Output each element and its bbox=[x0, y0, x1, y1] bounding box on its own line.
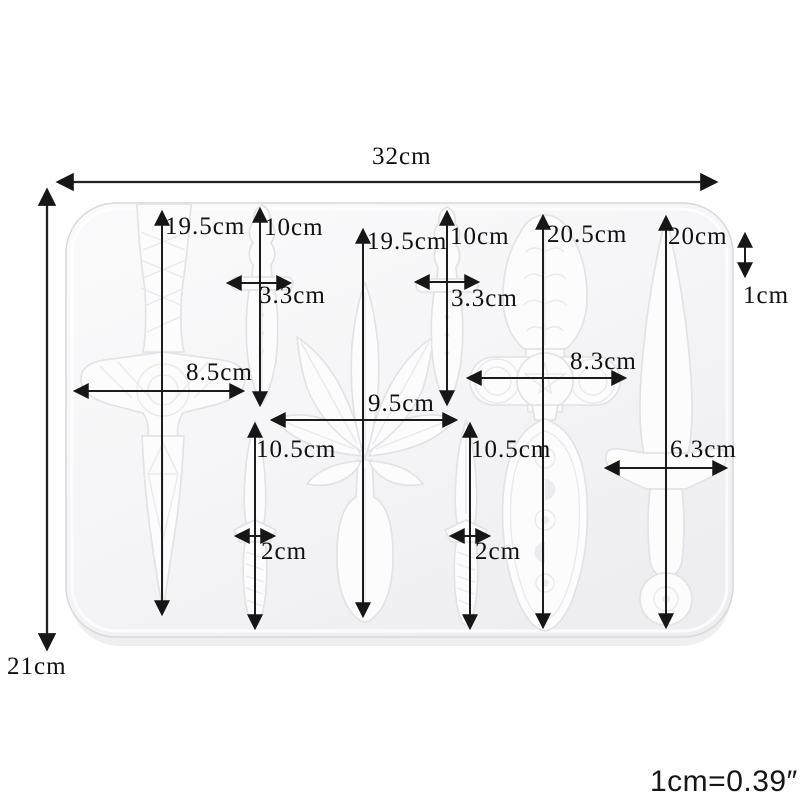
label-knife-guard-width: 6.3cm bbox=[670, 437, 737, 463]
label-dagger-left-guard: 3.3cm bbox=[259, 283, 326, 309]
label-athame-length: 20.5cm bbox=[547, 222, 627, 248]
label-dagger-left-blade: 10.5cm bbox=[256, 437, 336, 463]
unit-conversion-note: 1cm=0.39″ bbox=[650, 767, 798, 797]
label-sword-guard-width: 8.5cm bbox=[186, 360, 253, 386]
label-leaf-width: 9.5cm bbox=[368, 391, 435, 417]
mold-dimension-diagram: 32cm 21cm 19.5cm 8.5cm 10cm 3.3cm 10.5cm… bbox=[0, 0, 800, 800]
label-edge-margin: 1cm bbox=[743, 283, 789, 309]
label-overall-width: 32cm bbox=[372, 144, 432, 170]
label-leaf-height: 19.5cm bbox=[367, 229, 447, 255]
label-overall-height: 21cm bbox=[7, 654, 67, 680]
label-dagger-right-blade: 10.5cm bbox=[471, 437, 551, 463]
label-sword-length: 19.5cm bbox=[165, 214, 245, 240]
label-dagger-right-handle: 10cm bbox=[450, 224, 510, 250]
label-athame-guard-width: 8.3cm bbox=[570, 349, 637, 375]
label-dagger-left-width: 2cm bbox=[261, 539, 307, 565]
label-knife-length: 20cm bbox=[668, 224, 728, 250]
label-dagger-right-guard: 3.3cm bbox=[451, 286, 518, 312]
label-dagger-right-width: 2cm bbox=[475, 539, 521, 565]
label-dagger-left-handle: 10cm bbox=[264, 215, 324, 241]
